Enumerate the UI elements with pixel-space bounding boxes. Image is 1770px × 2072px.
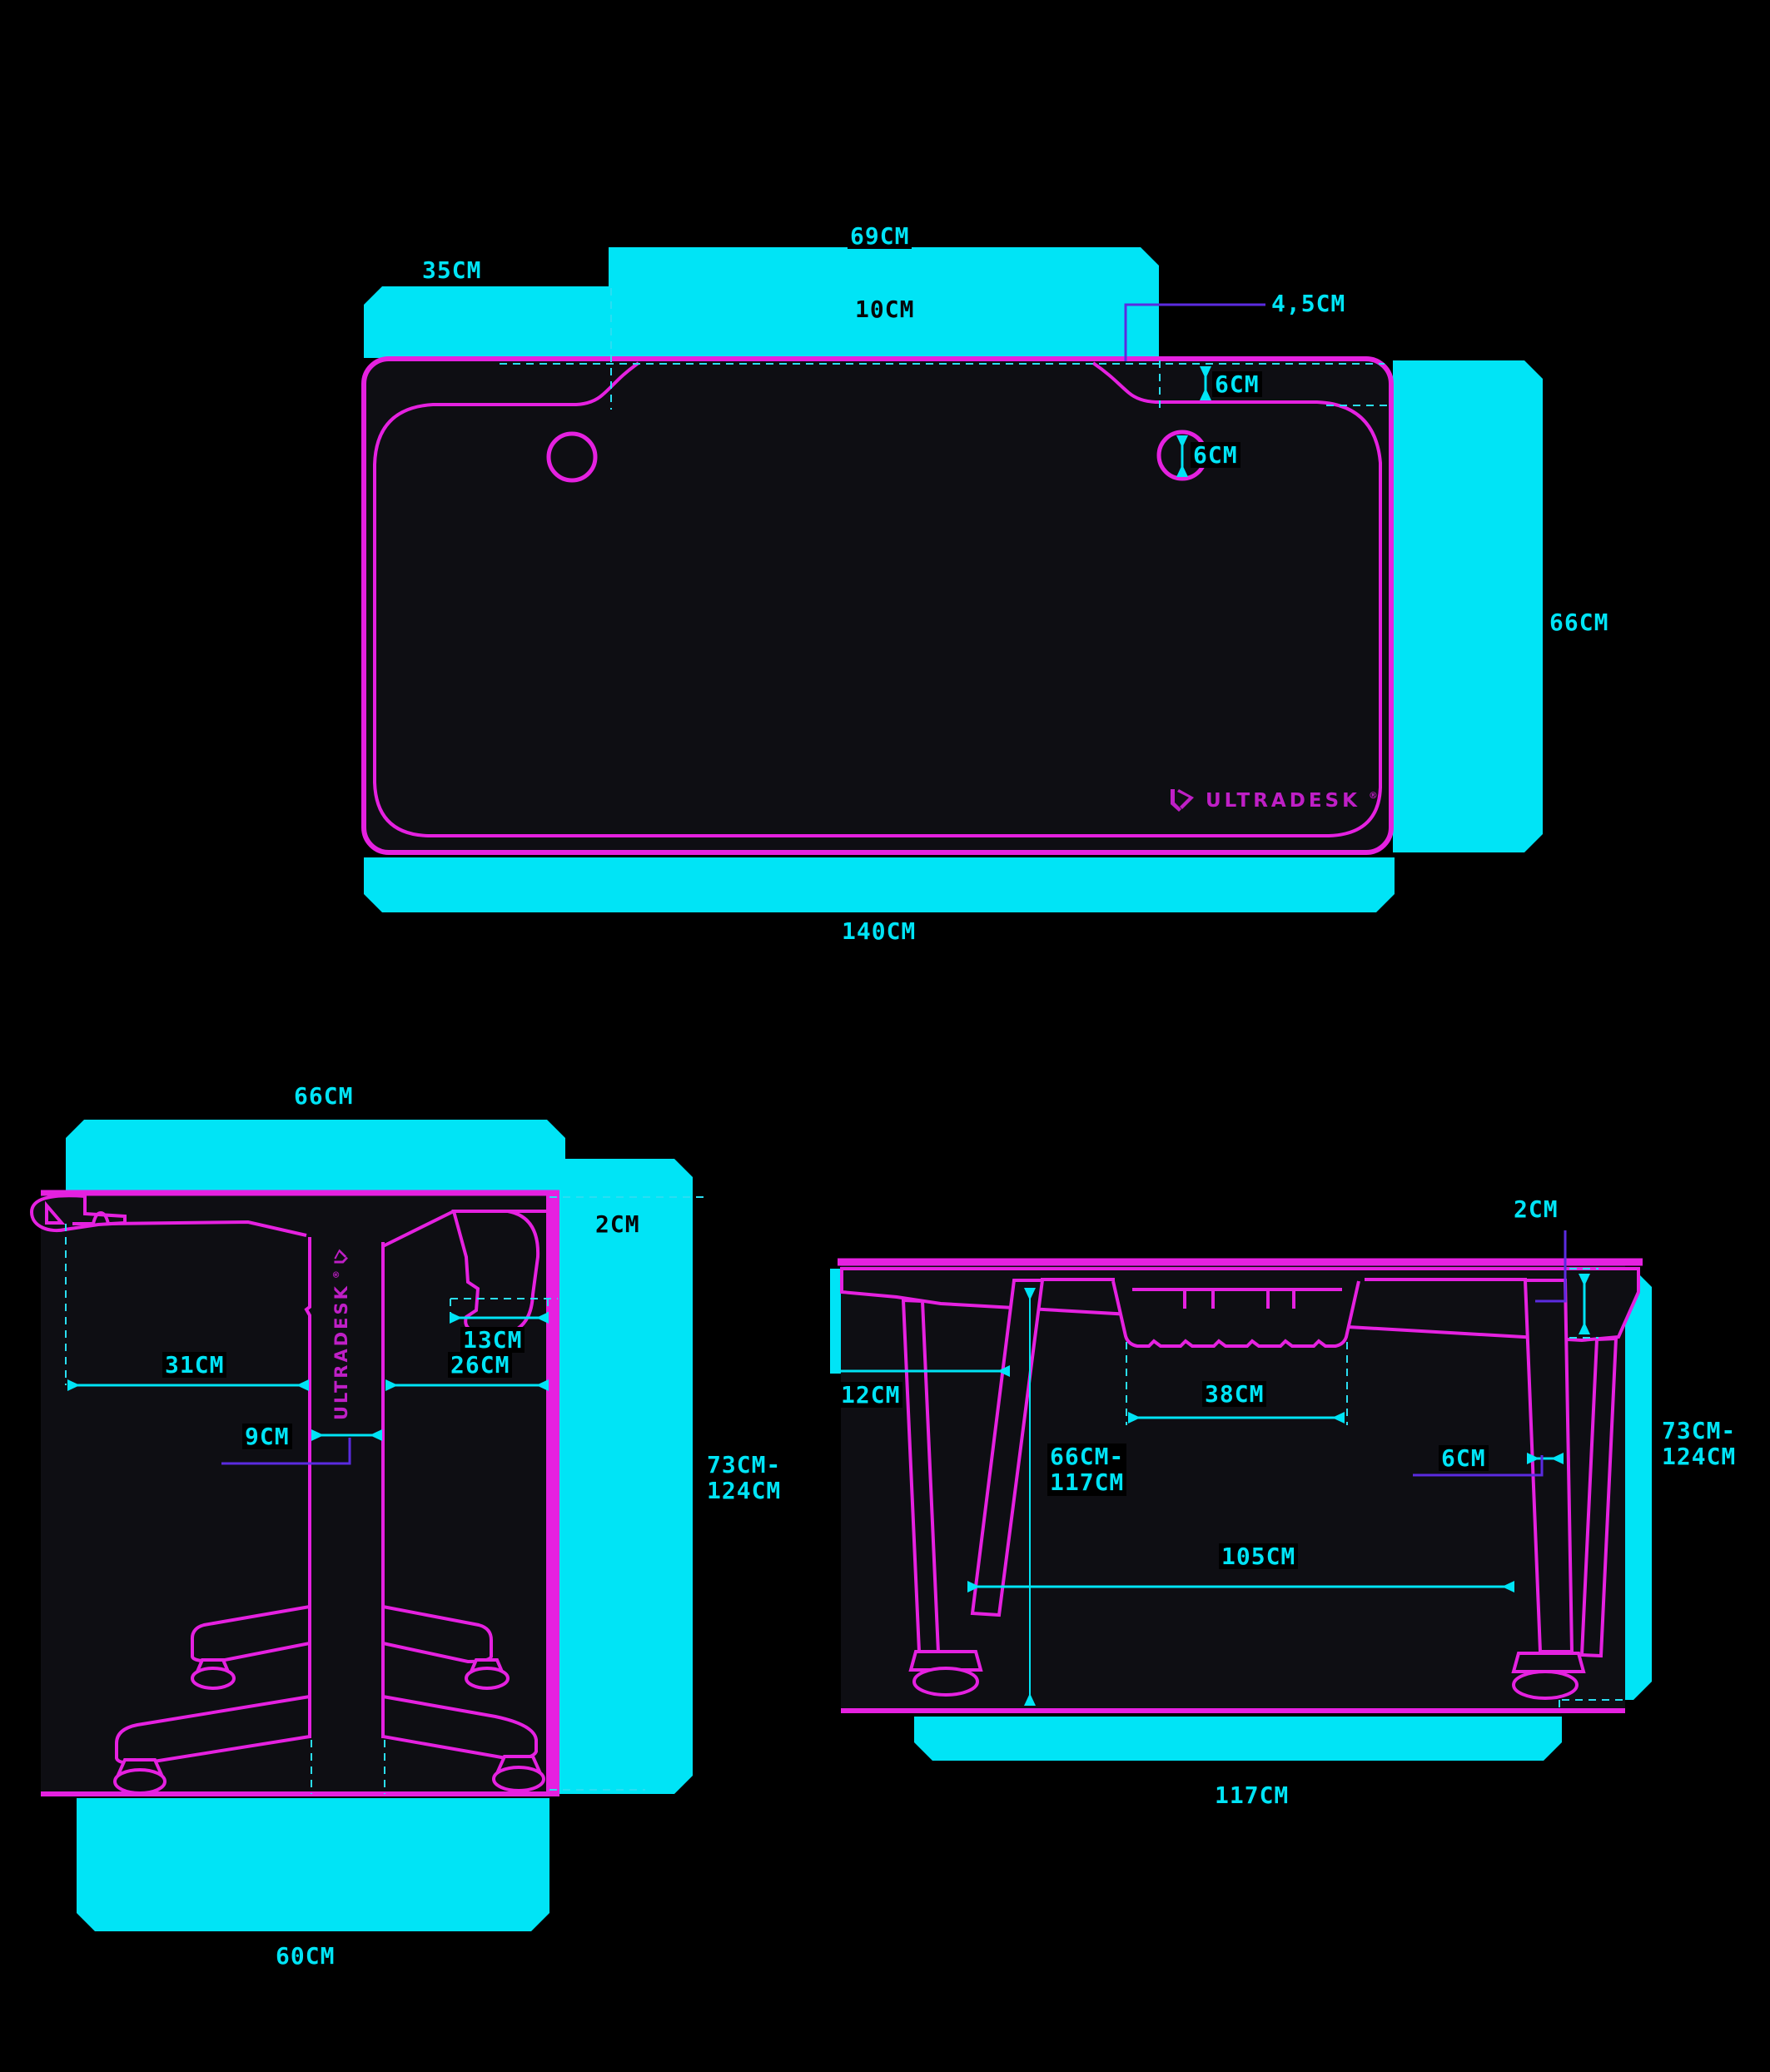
dim-top-grommet: 6CM xyxy=(1191,442,1240,468)
dim-side-thickness: 2CM xyxy=(593,1211,643,1237)
dim-front-height-line2: 124CM xyxy=(1662,1443,1736,1470)
dim-front-thickness: 2CM xyxy=(1511,1196,1561,1222)
dim-side-column: 9CM xyxy=(242,1424,292,1449)
grommet-left xyxy=(549,434,595,480)
dim-side-depth: 66CM xyxy=(291,1083,355,1109)
brand-wordmark: ULTRADESK xyxy=(1206,790,1360,812)
spec-sheet: 35CM 69CM 10CM 4,5CM 6CM 6CM 66CM 140CM … xyxy=(0,0,1770,2072)
dim-top-corner: 4,5CM xyxy=(1269,291,1348,316)
bar-side-60cm xyxy=(77,1798,549,1931)
registered-mark-vertical: ® xyxy=(332,1270,341,1279)
registered-mark: ® xyxy=(1369,790,1378,801)
bar-front-left-edge xyxy=(830,1269,841,1374)
brand-logo-side-view: ULTRADESK ® xyxy=(331,1241,351,1420)
dim-front-clearance-line1: 66CM- xyxy=(1050,1443,1124,1470)
dim-front-width: 117CM xyxy=(1212,1782,1291,1808)
desktop-outline xyxy=(364,359,1391,852)
ultradesk-icon-vertical xyxy=(333,1247,350,1265)
dim-top-mid-depth: 10CM xyxy=(853,296,917,322)
dim-front-overhang: 12CM xyxy=(838,1382,902,1408)
dim-side-front: 31CM xyxy=(162,1352,226,1378)
dim-front-height-line1: 73CM- xyxy=(1662,1417,1736,1444)
brand-logo-top-view: ULTRADESK ® xyxy=(1167,788,1378,814)
bar-side-73-124 xyxy=(559,1159,693,1794)
dim-front-leg: 6CM xyxy=(1439,1445,1489,1471)
dim-side-hook: 13CM xyxy=(460,1327,525,1353)
dim-top-edge-inset: 6CM xyxy=(1212,371,1262,397)
dim-front-clearance: 66CM-117CM xyxy=(1047,1443,1126,1496)
dim-front-span: 105CM xyxy=(1219,1543,1298,1569)
dim-front-tray: 38CM xyxy=(1202,1381,1266,1407)
bar-66cm xyxy=(1393,360,1543,852)
dim-top-mid-section: 69CM xyxy=(848,223,912,249)
dim-top-depth: 66CM xyxy=(1547,609,1611,635)
bar-35cm xyxy=(364,286,609,358)
front-view xyxy=(830,1230,1652,1761)
bar-front-117cm xyxy=(914,1717,1562,1761)
dim-top-left-section: 35CM xyxy=(420,257,484,283)
ultradesk-icon xyxy=(1167,788,1197,814)
dim-front-height-range: 73CM-124CM xyxy=(1659,1418,1738,1470)
side-rear-edge xyxy=(546,1191,559,1796)
dim-side-height-line2: 124CM xyxy=(707,1477,781,1504)
bar-140cm xyxy=(364,857,1395,912)
dim-side-height-range: 73CM-124CM xyxy=(704,1452,783,1504)
dim-side-base: 60CM xyxy=(273,1943,337,1969)
dim-front-clearance-line2: 117CM xyxy=(1050,1468,1124,1496)
bar-side-66cm xyxy=(66,1120,565,1190)
dim-side-rear: 26CM xyxy=(448,1352,512,1378)
bar-front-73-124 xyxy=(1625,1269,1652,1700)
dim-side-height-line1: 73CM- xyxy=(707,1451,781,1478)
brand-wordmark-vertical: ULTRADESK xyxy=(331,1284,351,1420)
dim-top-width: 140CM xyxy=(839,918,918,944)
side-view xyxy=(32,1120,704,1931)
